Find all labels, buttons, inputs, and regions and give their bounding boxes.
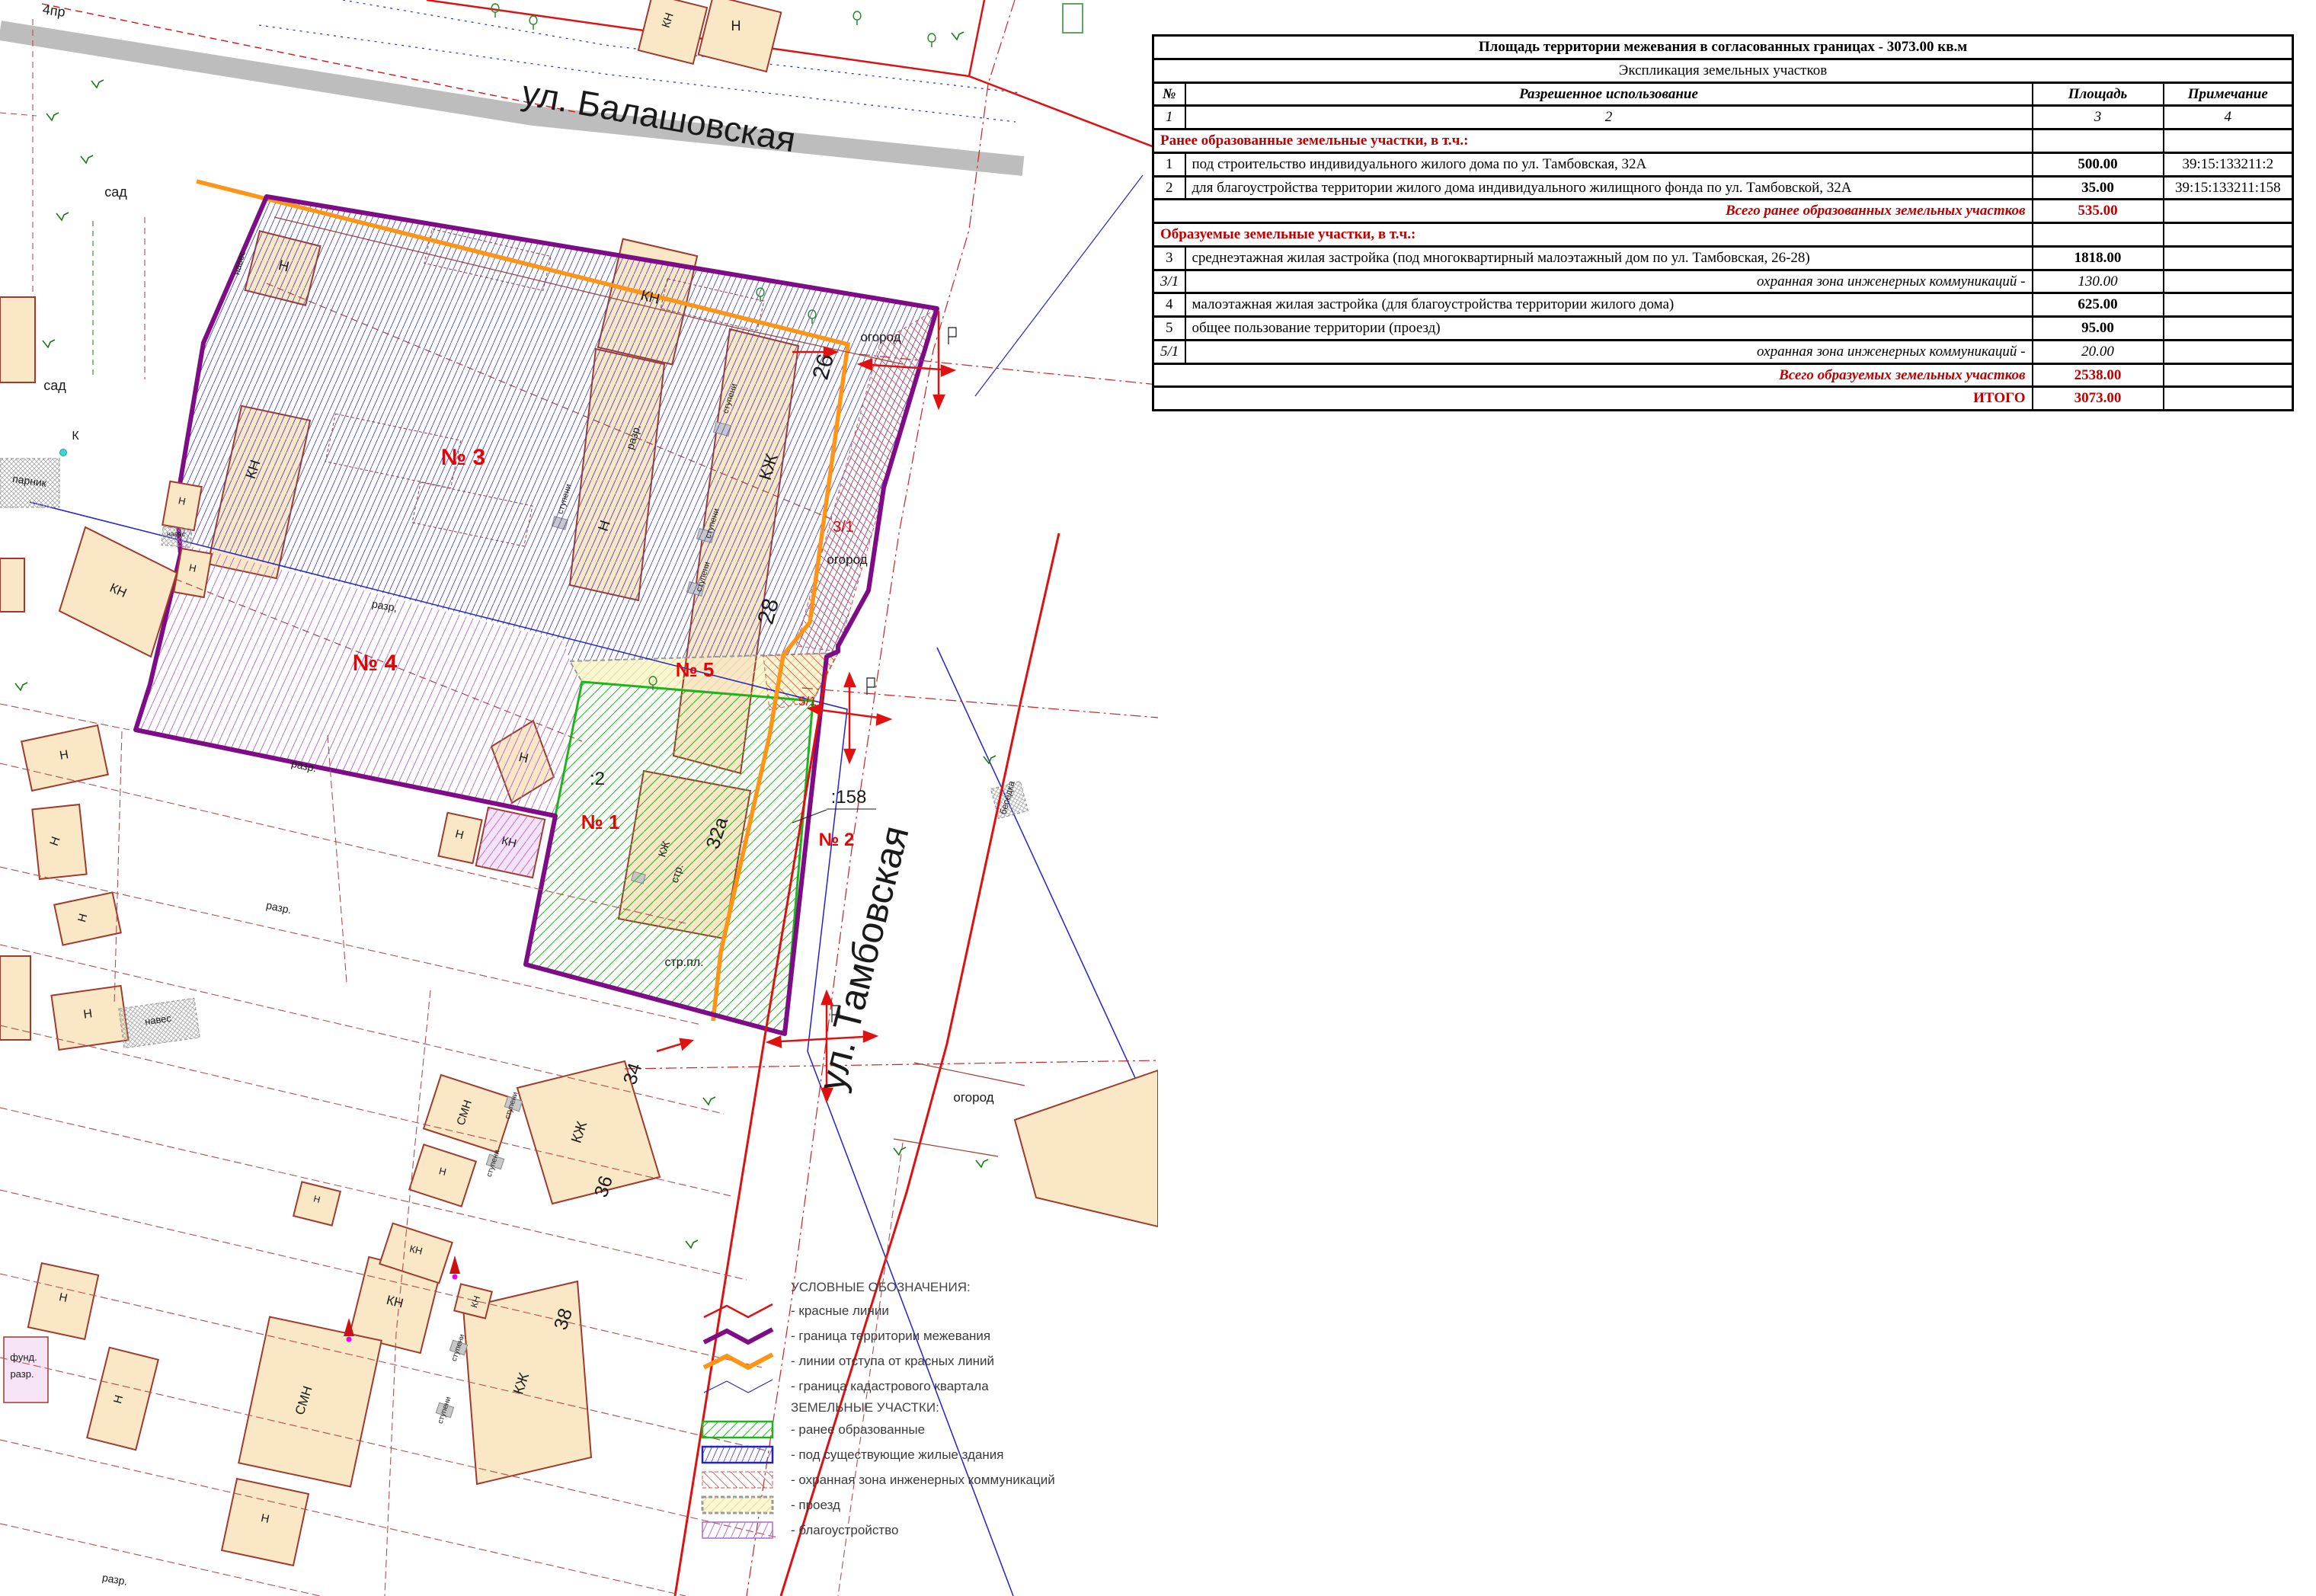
row-5-num: 5	[1153, 317, 1185, 341]
map-label: фунд.	[10, 1351, 37, 1363]
map-label: разр.	[10, 1368, 34, 1380]
parcel-1-label: № 1	[581, 811, 620, 833]
well-point	[60, 449, 67, 456]
map-label: 4пр	[42, 2, 66, 20]
legend-section-title: ЗЕМЕЛЬНЫЕ УЧАСТКИ:	[791, 1400, 1158, 1415]
row-3-1-num: 3/1	[1153, 270, 1185, 293]
green-hatch-icon	[701, 1419, 777, 1441]
cadastre-line-east	[937, 648, 1158, 1127]
row-2-note: 39:15:133211:158	[2164, 176, 2293, 200]
purple-zigzag-icon	[701, 1326, 777, 1347]
map-label: сад	[104, 184, 127, 200]
row-3-1-use: охранная зона инженерных коммуникаций -	[1185, 270, 2033, 293]
itogo-label: ИТОГО	[1153, 387, 2033, 411]
violet-hatch-icon	[701, 1520, 777, 1541]
total-2-value: 2538.00	[2033, 363, 2164, 387]
map-label: :2	[590, 769, 605, 789]
legend-red-area: - охранная зона инженерных коммуникаций	[701, 1467, 1158, 1492]
red-zigzag-icon	[701, 1300, 777, 1322]
total-row-1: Всего ранее образованных земельных участ…	[1153, 200, 2293, 223]
map-label: разр.	[101, 1571, 129, 1588]
table-row-1: 1 под строительство индивидуального жило…	[1153, 152, 2293, 176]
section-row-1: Ранее образованные земельные участки, в …	[1153, 130, 2293, 153]
yellow-hatch-icon	[701, 1495, 777, 1516]
legend-violet-area-label: - благоустройство	[791, 1523, 898, 1538]
cadastre-line-topright	[975, 175, 1143, 396]
table-header-row: № Разрешенное использование Площадь Прим…	[1153, 82, 2293, 106]
table-row-2: 2 для благоустройства территории жилого …	[1153, 176, 2293, 200]
map-label: 3/1	[833, 519, 854, 536]
colnum-4: 4	[2164, 106, 2293, 130]
road-balashovskaya	[0, 30, 1023, 166]
map-label: Н	[82, 1007, 93, 1021]
legend-boundary-label: - граница территории межевания	[791, 1329, 990, 1344]
legend: УСЛОВНЫЕ ОБОЗНАЧЕНИЯ: - красные линии - …	[701, 1280, 1158, 1543]
legend-blue-area-label: - под существующие жилые здания	[791, 1447, 1004, 1463]
colnum-1: 1	[1153, 106, 1185, 130]
table-row-5-1: 5/1 охранная зона инженерных коммуникаци…	[1153, 340, 2293, 363]
map-label: огород	[827, 552, 867, 567]
row-4-area: 625.00	[2033, 293, 2164, 317]
row-3-1-note	[2164, 270, 2293, 293]
map-label: огород	[860, 330, 900, 344]
table-colnum-row: 1 2 3 4	[1153, 106, 2293, 130]
row-5-area: 95.00	[2033, 317, 2164, 341]
cadastral-plan-page: { "table": { "title": "Площадь территори…	[0, 0, 2316, 1596]
section-1-label: Ранее образованные земельные участки, в …	[1153, 130, 2033, 153]
legend-offset: - линии отступа от красных линий	[701, 1348, 1158, 1374]
legend-red-area-label: - охранная зона инженерных коммуникаций	[791, 1473, 1055, 1488]
legend-cadastre: - граница кадастрового квартала	[701, 1374, 1158, 1399]
total-row-2: Всего образуемых земельных участков 2538…	[1153, 363, 2293, 387]
map-label: стр.пл.	[664, 956, 703, 969]
parcel-2-label: № 2	[819, 830, 855, 850]
table-row-3: 3 среднеэтажная жилая застройка (под мно…	[1153, 246, 2293, 270]
map-label: сад	[43, 378, 66, 393]
legend-title: УСЛОВНЫЕ ОБОЗНАЧЕНИЯ:	[791, 1280, 1158, 1295]
street-tambovskaya: ул. Тамбовская	[810, 821, 916, 1095]
explication-table: Площадь территории межевания в согласова…	[1152, 34, 2294, 411]
map-label: навес	[167, 530, 186, 538]
map-label: разр.	[265, 899, 293, 916]
section-row-2: Образуемые земельные участки, в т.ч.:	[1153, 223, 2293, 247]
table-subtitle-row: Экспликация земельных участков	[1153, 59, 2293, 82]
parcel-5-label: № 5	[676, 658, 715, 681]
col-header-note: Примечание	[2164, 82, 2293, 106]
legend-violet-area: - благоустройство	[701, 1518, 1158, 1543]
red-hatch-icon	[701, 1470, 777, 1491]
colnum-3: 3	[2033, 106, 2164, 130]
row-2-area: 35.00	[2033, 176, 2164, 200]
parcel-4-label: № 4	[353, 651, 398, 676]
row-1-use: под строительство индивидуального жилого…	[1185, 152, 2033, 176]
row-5-1-num: 5/1	[1153, 340, 1185, 363]
row-3-use: среднеэтажная жилая застройка (под много…	[1185, 246, 2033, 270]
row-5-1-use: охранная зона инженерных коммуникаций -	[1185, 340, 2033, 363]
total-2-label: Всего образуемых земельных участков	[1153, 363, 2033, 387]
legend-cadastre-label: - граница кадастрового квартала	[791, 1379, 989, 1394]
legend-red-lines: - красные линии	[701, 1298, 1158, 1323]
parcel-3-label: № 3	[441, 445, 485, 470]
map-label: Н	[731, 18, 741, 34]
blue-hatch-icon	[701, 1444, 777, 1466]
colnum-2: 2	[1185, 106, 2033, 130]
row-4-num: 4	[1153, 293, 1185, 317]
legend-offset-label: - линии отступа от красных линий	[791, 1354, 994, 1369]
row-5-1-area: 20.00	[2033, 340, 2164, 363]
total-1-value: 535.00	[2033, 200, 2164, 223]
table-row-5: 5 общее пользование территории (проезд) …	[1153, 317, 2293, 341]
col-header-use: Разрешенное использование	[1185, 82, 2033, 106]
green-structure	[1063, 4, 1083, 33]
itogo-row: ИТОГО 3073.00	[1153, 387, 2293, 411]
legend-green-area: - ранее образованные	[701, 1417, 1158, 1442]
col-header-num: №	[1153, 82, 1185, 106]
map-label: :158	[831, 787, 867, 808]
blue-zigzag-icon	[701, 1376, 777, 1397]
table-title: Площадь территории межевания в согласова…	[1153, 36, 2293, 59]
legend-yellow-area-label: - проезд	[791, 1498, 840, 1513]
row-3-area: 1818.00	[2033, 246, 2164, 270]
row-1-area: 500.00	[2033, 152, 2164, 176]
row-5-1-note	[2164, 340, 2293, 363]
row-2-num: 2	[1153, 176, 1185, 200]
legend-boundary: - граница территории межевания	[701, 1323, 1158, 1348]
row-1-note: 39:15:133211:2	[2164, 152, 2293, 176]
col-header-area: Площадь	[2033, 82, 2164, 106]
legend-red-lines-label: - красные линии	[791, 1303, 889, 1319]
row-2-use: для благоустройства территории жилого до…	[1185, 176, 2033, 200]
row-5-use: общее пользование территории (проезд)	[1185, 317, 2033, 341]
row-3-num: 3	[1153, 246, 1185, 270]
table-title-row: Площадь территории межевания в согласова…	[1153, 36, 2293, 59]
legend-blue-area: - под существующие жилые здания	[701, 1442, 1158, 1467]
table-row-4: 4 малоэтажная жилая застройка (для благо…	[1153, 293, 2293, 317]
row-4-note	[2164, 293, 2293, 317]
legend-green-area-label: - ранее образованные	[791, 1422, 925, 1438]
section-2-label: Образуемые земельные участки, в т.ч.:	[1153, 223, 2033, 247]
map-label: огород	[953, 1090, 993, 1105]
row-5-note	[2164, 317, 2293, 341]
table-row-3-1: 3/1 охранная зона инженерных коммуникаци…	[1153, 270, 2293, 293]
map-label: 5/1	[798, 694, 817, 708]
itogo-value: 3073.00	[2033, 387, 2164, 411]
row-1-num: 1	[1153, 152, 1185, 176]
orange-zigzag-icon	[701, 1351, 777, 1372]
map-label: К	[72, 430, 79, 443]
row-3-note	[2164, 246, 2293, 270]
table-subtitle: Экспликация земельных участков	[1153, 59, 2293, 82]
row-4-use: малоэтажная жилая застройка (для благоус…	[1185, 293, 2033, 317]
legend-yellow-area: - проезд	[701, 1492, 1158, 1518]
total-1-label: Всего ранее образованных земельных участ…	[1153, 200, 2033, 223]
street-balashovskaya: ул. Балашовская	[519, 72, 798, 159]
row-3-1-area: 130.00	[2033, 270, 2164, 293]
